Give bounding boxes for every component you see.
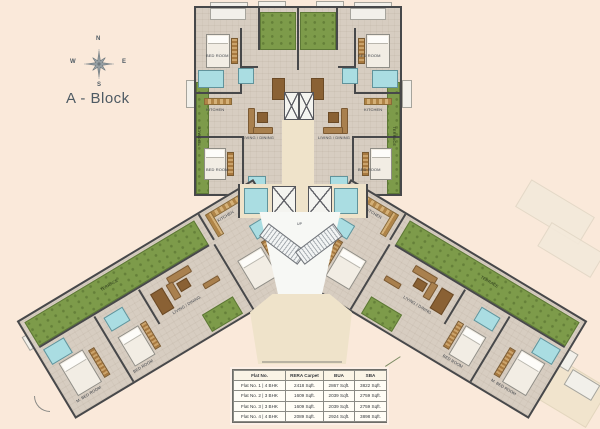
cell-sba: 2759 Sqft. <box>355 401 387 411</box>
toilet-area <box>334 188 358 214</box>
terrace-label: TERRACE <box>198 126 203 146</box>
coffee-table-icon <box>257 112 268 123</box>
col-bua: BUA <box>324 371 355 381</box>
table-row: Flat No. 4 | 4 BHK 2089 Sqft. 2924 Sqft.… <box>234 411 387 421</box>
block-title: A - Block <box>66 90 130 107</box>
wall <box>395 244 565 347</box>
toilet-area <box>473 307 500 332</box>
wall <box>337 8 339 50</box>
cell-bua: 2039 Sqft. <box>324 391 355 401</box>
cell-flat: Flat No. 3 | 3 BHK <box>234 401 286 411</box>
table-row: Flat No. 1 | 4 BHK 2418 Sqft. 2867 Sqft.… <box>234 381 387 391</box>
terrace-garden <box>300 12 336 50</box>
corridor <box>282 120 314 194</box>
room-label: BED ROOM <box>358 54 381 59</box>
lift-icon <box>308 186 332 215</box>
toilet-area <box>372 70 398 88</box>
sofa-icon <box>253 127 273 134</box>
cell-bua: 2867 Sqft. <box>324 381 355 391</box>
lift-icon <box>299 92 314 120</box>
kitchen-counter-icon <box>380 211 399 237</box>
sofa-icon <box>323 127 343 134</box>
wall <box>196 136 242 138</box>
room-label: BED ROOM <box>206 168 229 173</box>
lift-icon <box>284 92 299 120</box>
cell-bua: 2039 Sqft. <box>324 401 355 411</box>
compass-north-label: N <box>96 36 100 42</box>
balcony-slab <box>402 80 412 108</box>
cell-sba: 3898 Sqft. <box>355 411 387 421</box>
col-sba: SBA <box>355 371 387 381</box>
door-swing-arc <box>34 396 50 412</box>
wardrobe-icon <box>231 38 238 64</box>
north-wing: BED ROOM BED ROOM KITCHEN KITCHEN LIVING… <box>194 6 402 196</box>
terrace-label: TERRACE <box>392 126 397 146</box>
cell-bua: 2924 Sqft. <box>324 411 355 421</box>
wall <box>258 8 260 50</box>
cell-flat: Flat No. 2 | 3 BHK <box>234 391 286 401</box>
bed-icon <box>366 34 390 68</box>
compass-south-label: S <box>97 82 101 88</box>
cell-carpet: 1609 Sqft. <box>286 401 324 411</box>
kitchen-counter-icon <box>364 98 392 105</box>
toilet-area <box>244 188 268 214</box>
room-label: LIVING / DINING <box>242 136 274 141</box>
wardrobe-icon <box>358 38 365 64</box>
entrance-lobby <box>250 294 352 364</box>
tv-unit-icon <box>202 275 221 289</box>
toilet-area <box>198 70 224 88</box>
terrace-garden <box>361 296 402 332</box>
coffee-table-icon <box>328 112 339 123</box>
balcony-slab <box>210 8 246 20</box>
table-leader-line <box>385 356 401 367</box>
table-header-row: Flat No. RERA Carpet BUA SBA <box>234 371 387 381</box>
terrace-garden <box>202 296 243 332</box>
bed-icon <box>370 148 392 180</box>
compass-west-label: W <box>70 59 76 65</box>
room-label: BED ROOM <box>358 168 381 173</box>
toilet-area <box>342 68 358 84</box>
table-row: Flat No. 2 | 3 BHK 1609 Sqft. 2039 Sqft.… <box>234 391 387 401</box>
cell-flat: Flat No. 4 | 4 BHK <box>234 411 286 421</box>
room-label: KITCHEN <box>364 108 382 113</box>
cell-sba: 2759 Sqft. <box>355 391 387 401</box>
stair-label: UP <box>297 222 302 227</box>
col-flat-no: Flat No. <box>234 371 286 381</box>
room-label: KITCHEN <box>206 108 224 113</box>
compass-star-icon <box>83 48 115 80</box>
bed-icon <box>204 148 226 180</box>
compass-east-label: E <box>122 59 126 65</box>
room-label: LIVING / DINING <box>318 136 350 141</box>
cell-carpet: 1609 Sqft. <box>286 391 324 401</box>
wall <box>354 92 400 94</box>
toilet-area <box>238 68 254 84</box>
cell-flat: Flat No. 1 | 4 BHK <box>234 381 286 391</box>
kitchen-counter-icon <box>204 98 232 105</box>
cell-carpet: 2089 Sqft. <box>286 411 324 421</box>
floor-plan-sheet: N S W E A - Block <box>0 0 600 429</box>
toilet-area <box>103 307 130 332</box>
terrace-garden <box>260 12 296 50</box>
compass-rose: N S W E <box>70 34 128 92</box>
lift-icon <box>272 186 296 215</box>
area-table: Flat No. RERA Carpet BUA SBA Flat No. 1 … <box>232 369 387 423</box>
bed-icon <box>206 34 230 68</box>
room-label: BED ROOM <box>206 54 229 59</box>
balcony-slab <box>350 8 386 20</box>
col-rera-carpet: RERA Carpet <box>286 371 324 381</box>
wall <box>297 8 299 70</box>
cell-carpet: 2418 Sqft. <box>286 381 324 391</box>
wall <box>196 92 242 94</box>
tv-unit-icon <box>383 275 402 289</box>
entrance-step <box>262 361 342 363</box>
table-row: Flat No. 3 | 3 BHK 1609 Sqft. 2039 Sqft.… <box>234 401 387 411</box>
cell-sba: 3822 Sqft. <box>355 381 387 391</box>
